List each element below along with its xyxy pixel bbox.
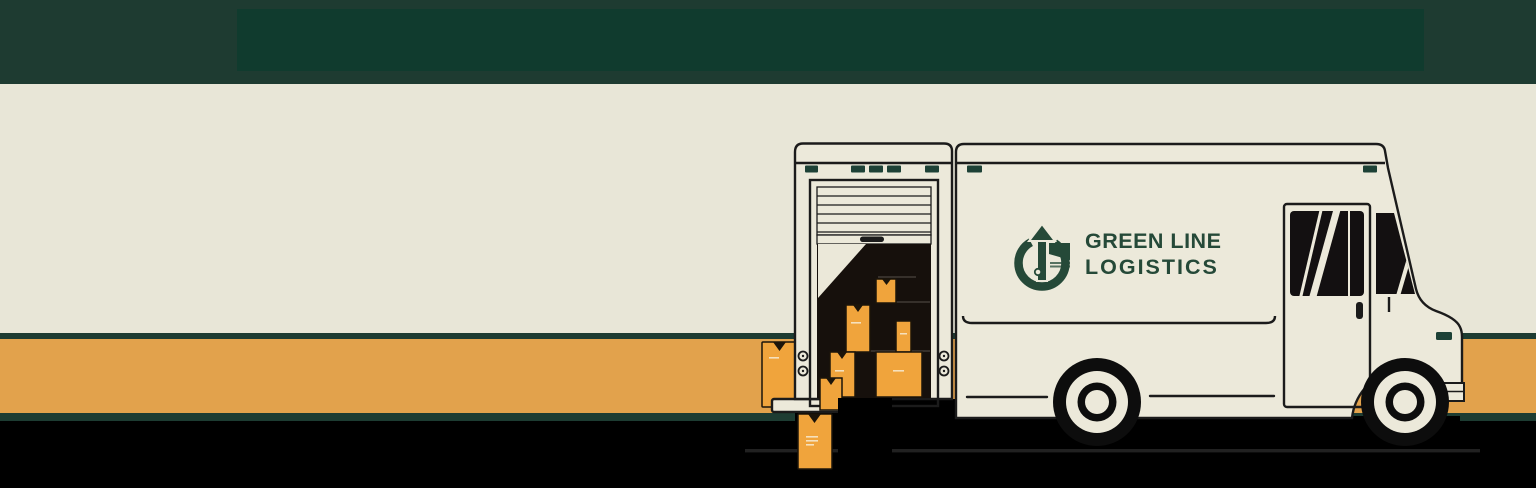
cargo-section	[795, 144, 952, 411]
front-wheel	[1361, 358, 1449, 446]
logo-line-1: GREEN LINE	[1085, 229, 1221, 255]
door-handle	[1356, 302, 1363, 319]
package-box	[896, 321, 911, 352]
package-box	[846, 305, 870, 352]
logo-line-2: LOGISTICS	[1085, 255, 1221, 281]
logo-wordmark: GREEN LINE LOGISTICS	[1085, 229, 1221, 280]
rolling-door	[817, 187, 931, 244]
door-handle	[860, 237, 884, 243]
hero-banner: GREEN LINE LOGISTICS	[0, 0, 1536, 488]
rear-wheel	[1053, 358, 1141, 446]
package-box	[798, 414, 832, 469]
package-box	[876, 352, 922, 397]
package-stack-silhouette	[838, 398, 892, 470]
delivery-truck-illustration	[0, 0, 1536, 488]
front-marker-light	[1436, 332, 1452, 340]
package-behind-truck	[762, 342, 795, 407]
package-box	[876, 279, 896, 303]
